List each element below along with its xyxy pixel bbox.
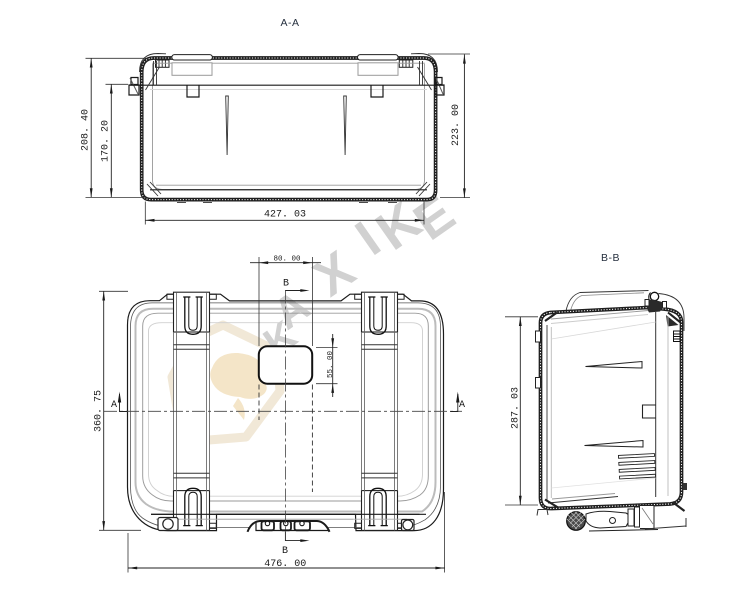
svg-text:287. 03: 287. 03	[510, 387, 521, 429]
svg-text:B-B: B-B	[601, 252, 620, 264]
svg-text:360. 75: 360. 75	[93, 390, 104, 432]
svg-text:170. 20: 170. 20	[100, 120, 111, 162]
svg-text:55. 00: 55. 00	[327, 351, 335, 379]
svg-text:A: A	[459, 400, 465, 411]
svg-text:B: B	[282, 546, 288, 557]
svg-text:A: A	[111, 400, 117, 411]
svg-text:208. 40: 208. 40	[80, 109, 91, 151]
svg-text:223. 00: 223. 00	[451, 104, 462, 146]
svg-text:A-A: A-A	[280, 17, 299, 29]
svg-text:B: B	[283, 278, 289, 289]
svg-text:427. 03: 427. 03	[264, 210, 306, 221]
svg-text:80. 00: 80. 00	[273, 256, 301, 264]
svg-text:476. 00: 476. 00	[264, 559, 306, 570]
